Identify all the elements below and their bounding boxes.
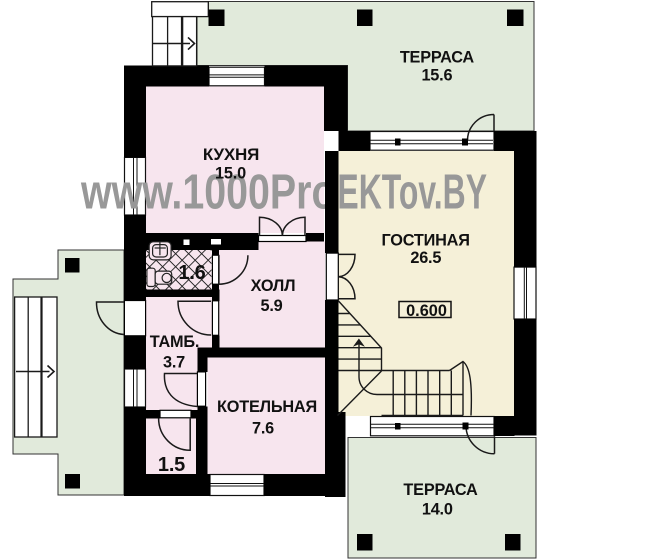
svg-text:14.0: 14.0 — [422, 500, 453, 518]
svg-text:1.5: 1.5 — [158, 454, 185, 476]
svg-text:ТЕРРАСА: ТЕРРАСА — [403, 481, 478, 499]
svg-text:EKTov.BY: EKTov.BY — [337, 166, 487, 220]
svg-text:ТАМБ.: ТАМБ. — [150, 333, 199, 351]
svg-text:1.6: 1.6 — [178, 262, 205, 284]
svg-text:26.5: 26.5 — [410, 249, 441, 267]
svg-text:3.7: 3.7 — [163, 353, 185, 371]
svg-text:ГОСТИНАЯ: ГОСТИНАЯ — [381, 231, 469, 249]
svg-text:15.0: 15.0 — [215, 164, 246, 182]
svg-text:0.600: 0.600 — [406, 302, 447, 320]
svg-text:5.9: 5.9 — [260, 297, 282, 315]
svg-text:КУХНЯ: КУХНЯ — [203, 145, 259, 164]
svg-text:КОТЕЛЬНАЯ: КОТЕЛЬНАЯ — [217, 398, 317, 416]
svg-text:www.1000Pro: www.1000Pro — [80, 166, 335, 220]
svg-text:15.6: 15.6 — [421, 67, 452, 85]
svg-text:ХОЛЛ: ХОЛЛ — [251, 277, 296, 295]
svg-text:ТЕРРАСА: ТЕРРАСА — [400, 48, 475, 66]
svg-text:7.6: 7.6 — [252, 419, 274, 437]
